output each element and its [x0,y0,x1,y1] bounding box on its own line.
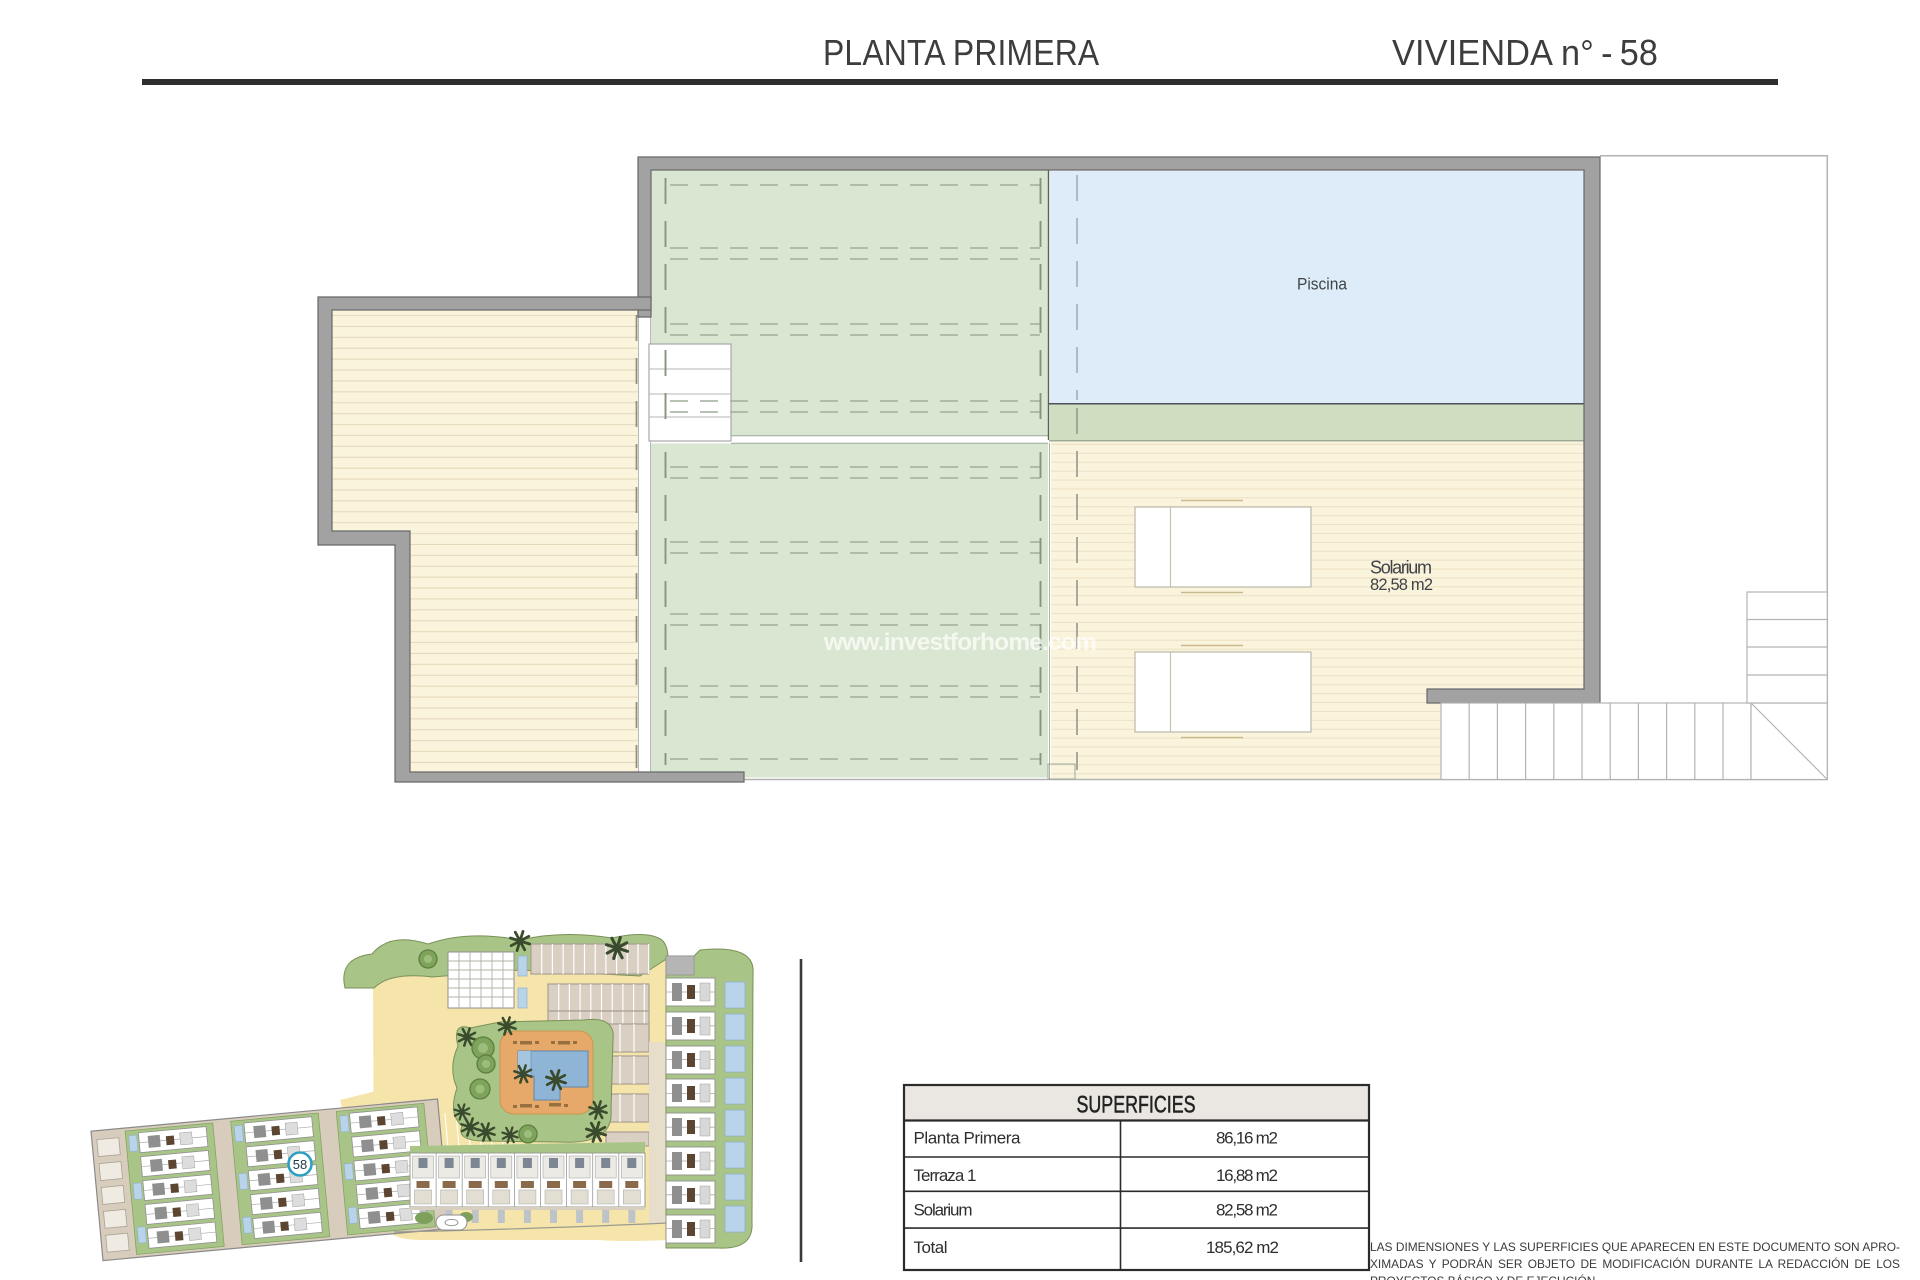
svg-text:Total: Total [914,1238,948,1257]
svg-text:82,58 m2: 82,58 m2 [1216,1201,1278,1220]
svg-text:Solarium: Solarium [914,1201,973,1220]
svg-text:16,88 m2: 16,88 m2 [1216,1166,1278,1185]
svg-text:58: 58 [293,1157,307,1172]
svg-text:Piscina: Piscina [1297,275,1347,294]
svg-text:Terraza 1: Terraza 1 [914,1166,977,1185]
svg-text:185,62 m2: 185,62 m2 [1206,1238,1279,1257]
svg-text:82,58 m2: 82,58 m2 [1370,576,1433,594]
svg-text:SUPERFICIES: SUPERFICIES [1077,1091,1196,1118]
svg-text:86,16 m2: 86,16 m2 [1216,1129,1278,1148]
svg-text:Planta Primera: Planta Primera [914,1129,1022,1148]
svg-text:Solarium: Solarium [1370,558,1432,578]
